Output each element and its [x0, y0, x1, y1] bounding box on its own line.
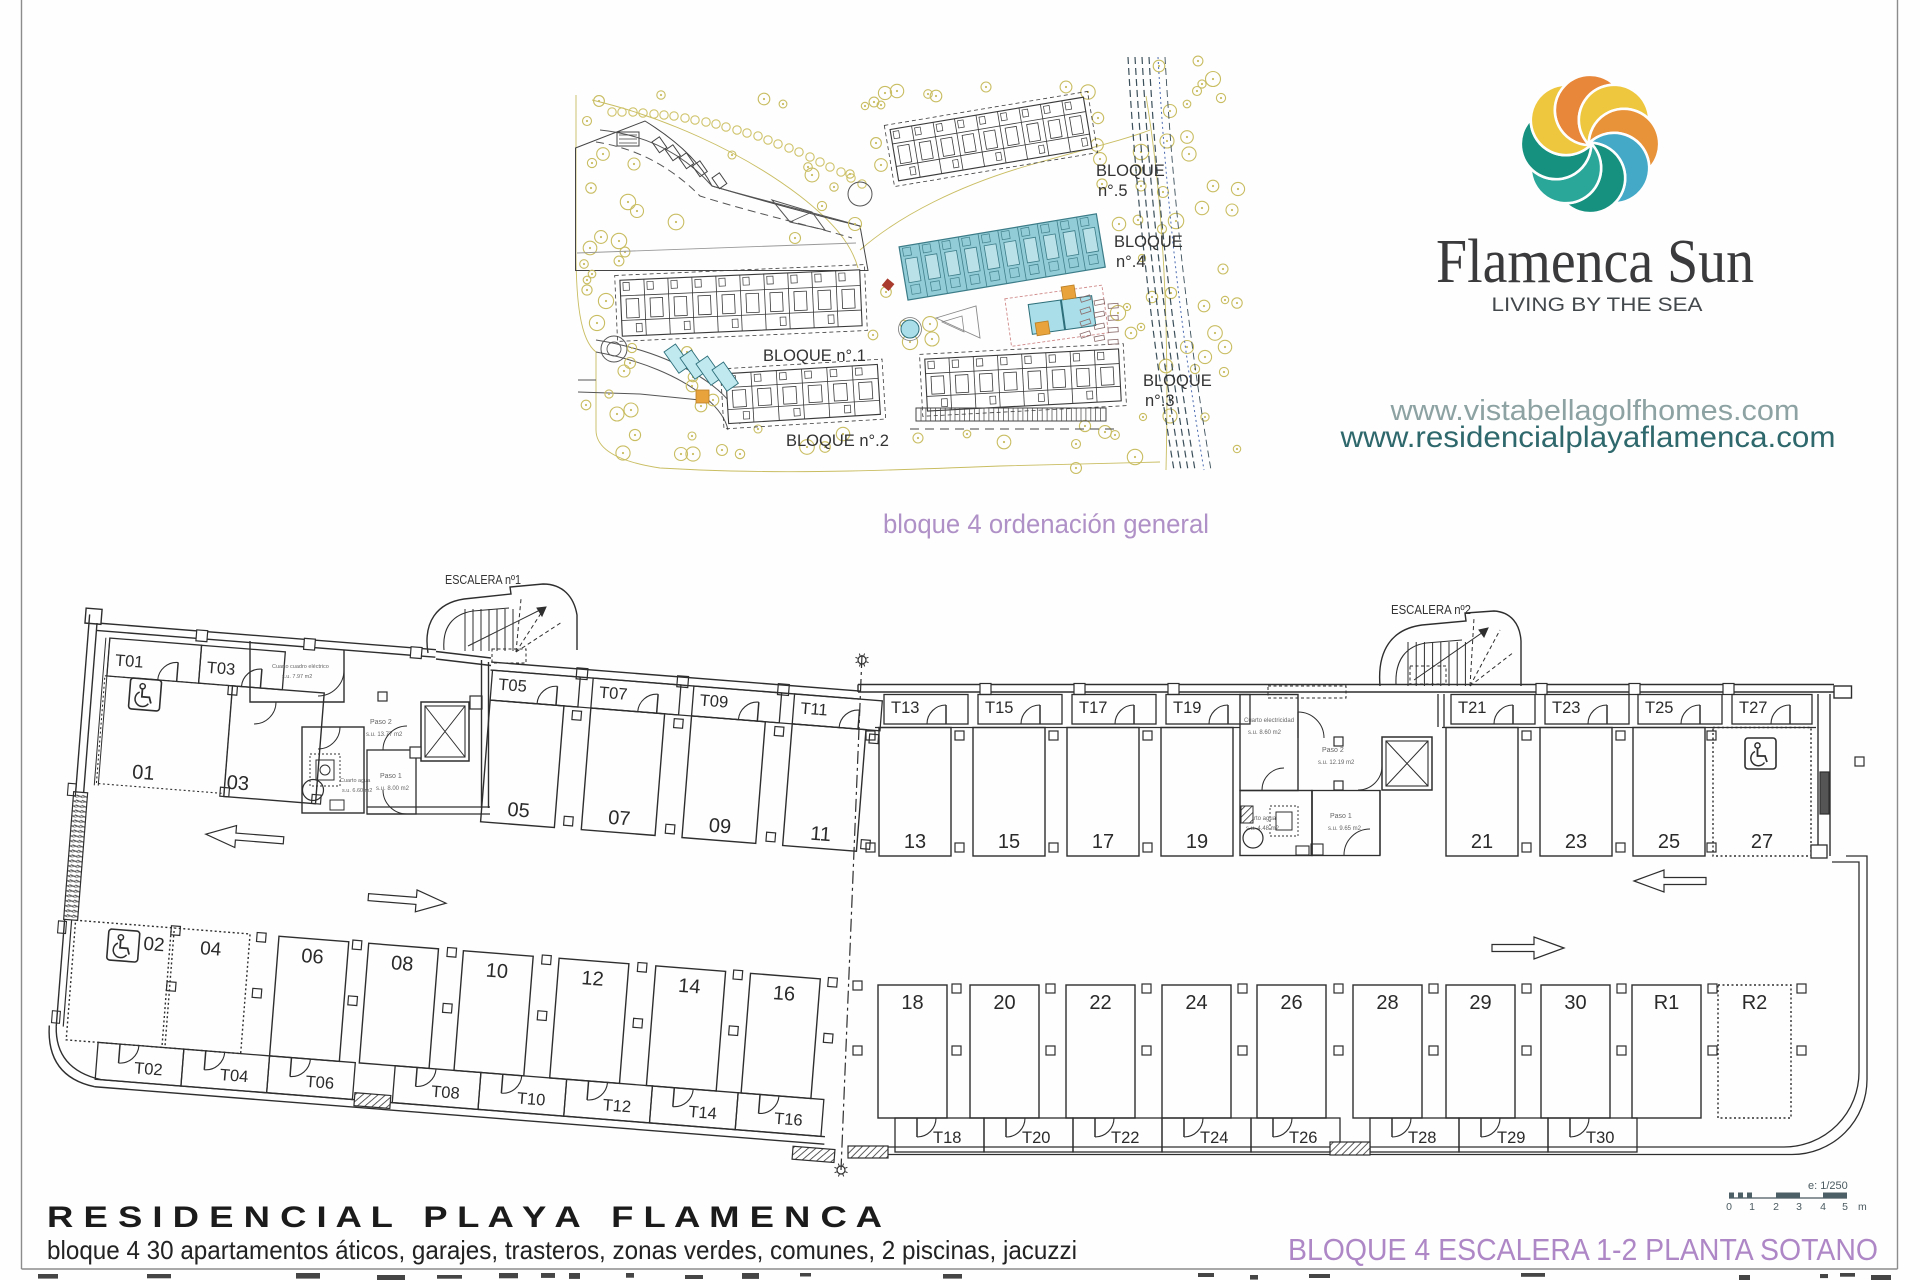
svg-text:T06: T06	[305, 1073, 335, 1093]
svg-text:28: 28	[1376, 992, 1398, 1014]
svg-text:05: 05	[507, 799, 531, 823]
svg-text:T11: T11	[800, 699, 829, 719]
svg-text:T01: T01	[114, 652, 144, 672]
svg-text:25: 25	[1658, 831, 1680, 853]
svg-text:T07: T07	[598, 684, 628, 704]
svg-text:T08: T08	[431, 1083, 461, 1103]
svg-text:Paso 1: Paso 1	[380, 773, 402, 780]
svg-text:Flamenca Sun: Flamenca Sun	[1436, 228, 1754, 296]
svg-text:Cuarto electricidad: Cuarto electricidad	[1244, 718, 1294, 724]
svg-text:BLOQUE: BLOQUE	[1114, 233, 1183, 251]
svg-text:17: 17	[1092, 831, 1114, 853]
svg-text:BLOQUE n°.1: BLOQUE n°.1	[763, 347, 866, 365]
svg-text:30: 30	[1564, 992, 1586, 1014]
svg-text:3: 3	[1796, 1201, 1802, 1213]
svg-text:19: 19	[1186, 831, 1208, 853]
svg-text:Paso 1: Paso 1	[1330, 813, 1352, 820]
svg-text:s.u. 8.00 m2: s.u. 8.00 m2	[376, 786, 410, 792]
svg-text:5: 5	[1842, 1201, 1848, 1213]
svg-text:14: 14	[677, 975, 701, 999]
svg-text:bloque 4 ordenación general: bloque 4 ordenación general	[883, 509, 1209, 539]
svg-text:s.u. 4.48 m2: s.u. 4.48 m2	[1246, 826, 1280, 832]
svg-text:R1: R1	[1654, 992, 1680, 1014]
svg-text:bloque 4 30 apartamentos ático: bloque 4 30 apartamentos áticos, garajes…	[47, 1235, 1077, 1265]
svg-text:BLOQUE 4 ESCALERA 1-2 PLANTA S: BLOQUE 4 ESCALERA 1-2 PLANTA SOTANO	[1288, 1232, 1878, 1267]
svg-text:13: 13	[904, 831, 926, 853]
svg-text:ESCALERA nº1: ESCALERA nº1	[445, 573, 521, 587]
svg-text:T24: T24	[1200, 1129, 1228, 1147]
svg-text:e: 1/250: e: 1/250	[1808, 1180, 1848, 1192]
svg-text:06: 06	[301, 945, 325, 969]
svg-text:23: 23	[1565, 831, 1587, 853]
svg-text:n°.4: n°.4	[1116, 253, 1146, 271]
svg-text:BLOQUE: BLOQUE	[1143, 372, 1212, 390]
svg-text:22: 22	[1089, 992, 1111, 1014]
svg-text:15: 15	[998, 831, 1020, 853]
svg-text:T03: T03	[206, 659, 236, 679]
svg-text:26: 26	[1280, 992, 1302, 1014]
svg-text:T13: T13	[891, 699, 919, 717]
svg-text:s.u. 12.19 m2: s.u. 12.19 m2	[1318, 760, 1355, 766]
svg-text:T22: T22	[1111, 1129, 1139, 1147]
svg-text:09: 09	[708, 815, 732, 839]
svg-text:s.u. 9.65 m2: s.u. 9.65 m2	[1328, 826, 1362, 832]
svg-text:ESCALERA nº2: ESCALERA nº2	[1391, 603, 1471, 617]
svg-text:T10: T10	[516, 1089, 546, 1109]
svg-text:20: 20	[993, 992, 1015, 1014]
svg-text:T25: T25	[1645, 699, 1673, 717]
svg-text:24: 24	[1185, 992, 1207, 1014]
svg-text:Paso 2: Paso 2	[370, 719, 392, 726]
svg-text:10: 10	[485, 960, 509, 984]
svg-text:www.residencialplayaflamenca.c: www.residencialplayaflamenca.com	[1339, 421, 1835, 454]
svg-text:11: 11	[809, 823, 831, 847]
svg-text:T28: T28	[1408, 1129, 1436, 1147]
svg-text:T02: T02	[133, 1059, 163, 1079]
svg-text:27: 27	[1751, 831, 1773, 853]
svg-text:T26: T26	[1289, 1129, 1317, 1147]
svg-text:T30: T30	[1586, 1129, 1614, 1147]
svg-text:2: 2	[1773, 1201, 1779, 1213]
svg-text:n°.5: n°.5	[1098, 182, 1128, 200]
svg-text:LIVING BY THE SEA: LIVING BY THE SEA	[1492, 294, 1703, 316]
svg-text:04: 04	[199, 938, 222, 961]
svg-text:29: 29	[1469, 992, 1491, 1014]
svg-text:T12: T12	[602, 1096, 632, 1116]
svg-text:08: 08	[390, 952, 414, 976]
svg-text:T21: T21	[1458, 699, 1486, 717]
svg-text:T19: T19	[1173, 699, 1201, 717]
svg-text:4: 4	[1820, 1201, 1826, 1213]
svg-text:02: 02	[143, 934, 166, 957]
svg-text:21: 21	[1471, 831, 1493, 853]
svg-text:m: m	[1858, 1201, 1867, 1213]
svg-text:T05: T05	[498, 676, 528, 696]
svg-text:s.u. 8.60 m2: s.u. 8.60 m2	[1248, 730, 1282, 736]
svg-text:0: 0	[1726, 1201, 1732, 1213]
svg-text:T14: T14	[688, 1103, 718, 1123]
svg-text:T15: T15	[985, 699, 1013, 717]
svg-text:R E S I D E N C I A L P L A: R E S I D E N C I A L P L A Y A F L A M …	[47, 1201, 882, 1234]
svg-text:BLOQUE: BLOQUE	[1096, 162, 1165, 180]
svg-text:18: 18	[901, 992, 923, 1014]
svg-text:s.u. 7.97 m2: s.u. 7.97 m2	[282, 674, 312, 680]
svg-text:T04: T04	[219, 1066, 249, 1086]
svg-text:T18: T18	[933, 1129, 961, 1147]
svg-text:n°.3: n°.3	[1145, 392, 1175, 410]
svg-text:s.u. 13.77 m2: s.u. 13.77 m2	[366, 732, 403, 738]
svg-text:07: 07	[607, 807, 631, 831]
svg-text:T09: T09	[699, 692, 729, 712]
svg-text:BLOQUE n°.2: BLOQUE n°.2	[786, 432, 889, 450]
svg-text:s.u. 6.60 m2: s.u. 6.60 m2	[342, 788, 372, 794]
svg-text:T27: T27	[1739, 699, 1767, 717]
svg-text:1: 1	[1749, 1201, 1755, 1213]
svg-text:T29: T29	[1497, 1129, 1525, 1147]
svg-text:01: 01	[131, 761, 155, 785]
svg-text:Cuarto cuadro eléctrico: Cuarto cuadro eléctrico	[272, 664, 329, 670]
svg-text:R2: R2	[1742, 992, 1768, 1014]
svg-text:12: 12	[581, 967, 605, 991]
svg-text:Paso 2: Paso 2	[1322, 747, 1344, 754]
svg-text:T20: T20	[1022, 1129, 1050, 1147]
svg-text:T17: T17	[1079, 699, 1107, 717]
svg-text:T16: T16	[773, 1110, 803, 1130]
svg-text:16: 16	[772, 982, 796, 1006]
svg-text:T23: T23	[1552, 699, 1580, 717]
